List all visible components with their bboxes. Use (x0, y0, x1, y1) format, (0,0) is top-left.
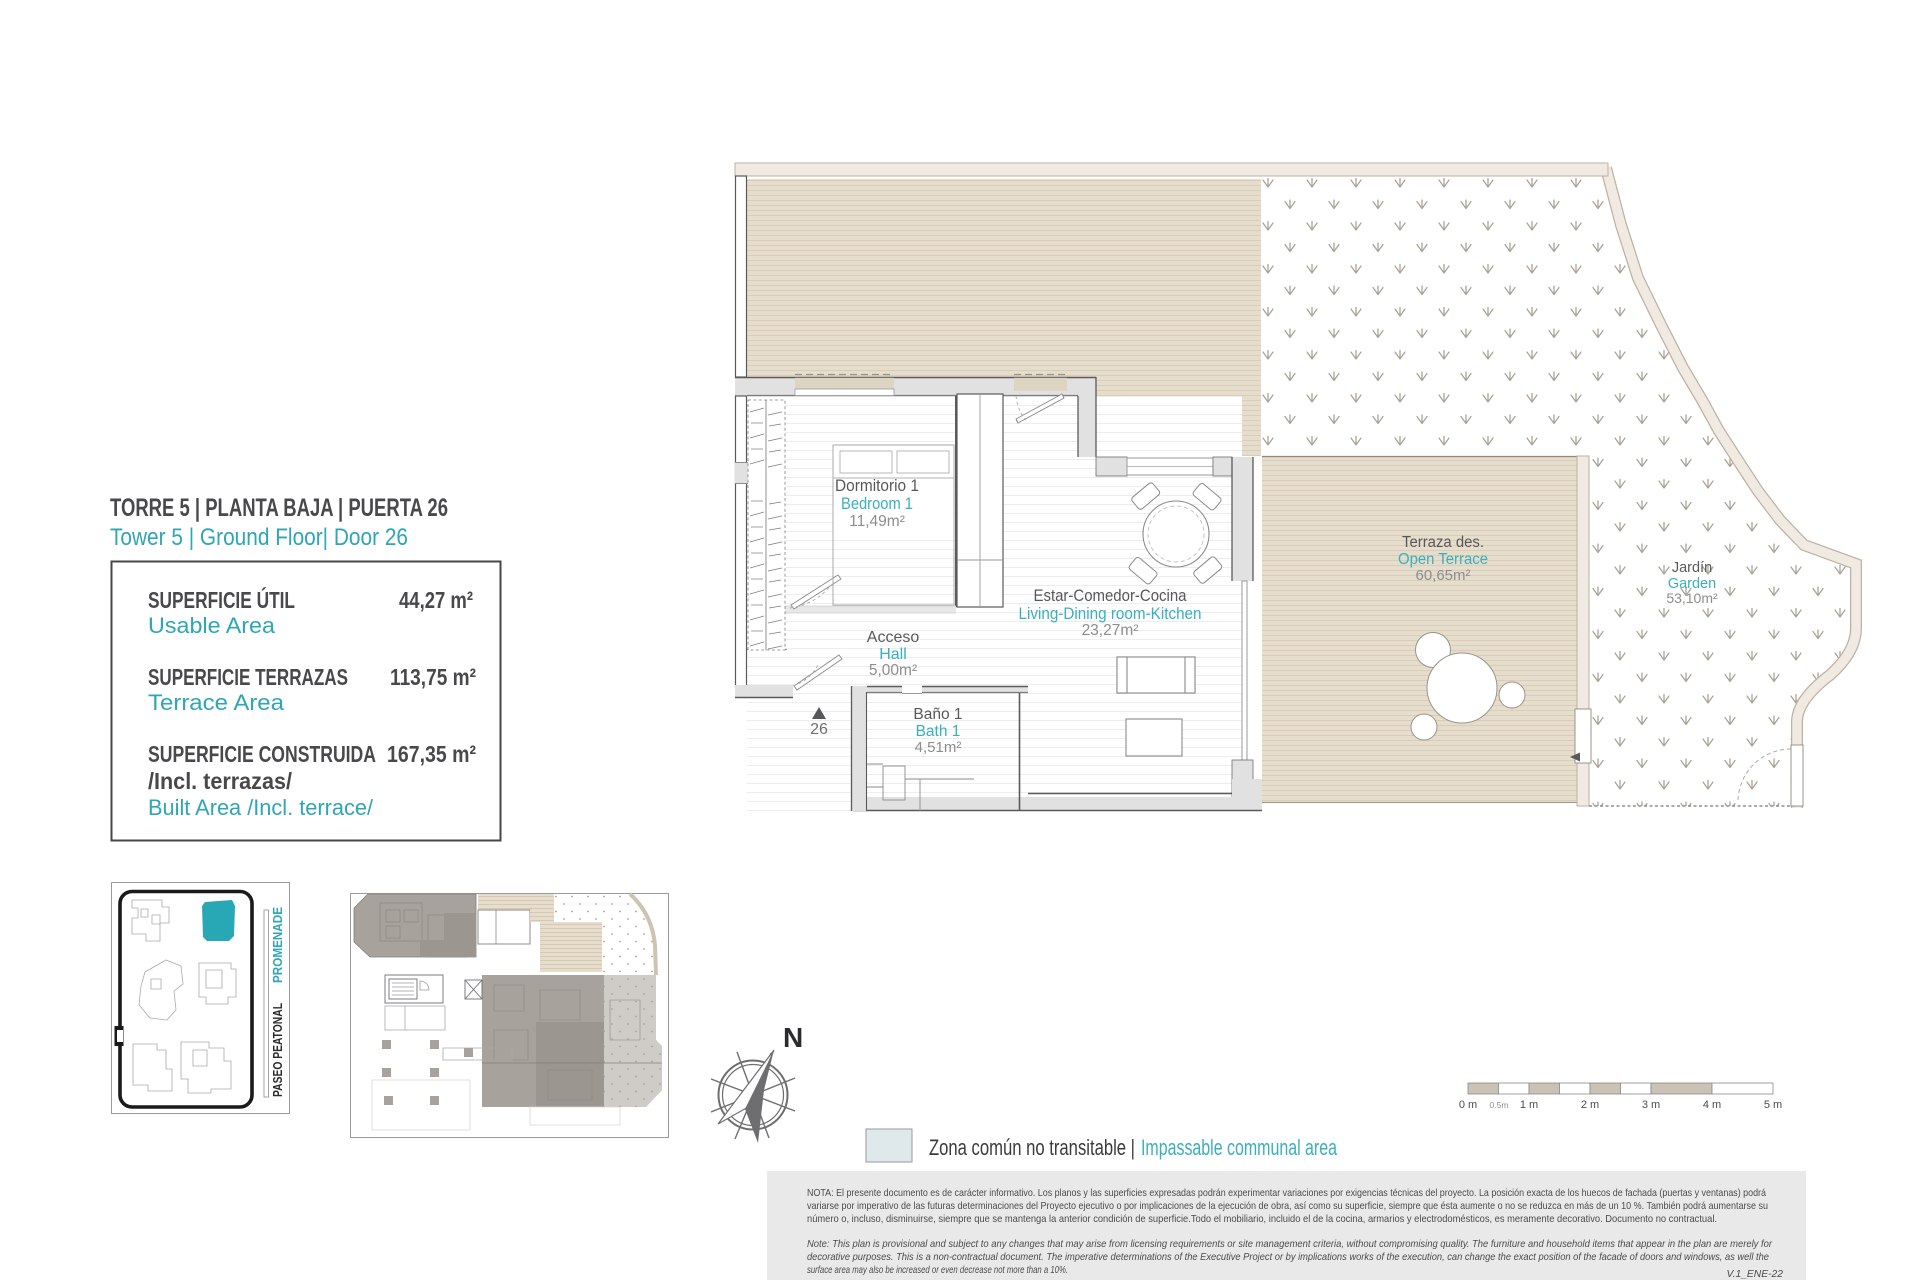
svg-text:Zona común no transitable |: Zona común no transitable | (929, 1135, 1135, 1160)
svg-text:Impassable communal area: Impassable communal area (1141, 1135, 1338, 1160)
svg-text:113,75 m²: 113,75 m² (390, 664, 476, 690)
svg-text:Acceso: Acceso (867, 629, 920, 646)
svg-text:Dormitorio 1: Dormitorio 1 (835, 477, 919, 495)
svg-text:Terraza des.: Terraza des. (1402, 534, 1484, 551)
svg-text:11,49m²: 11,49m² (849, 513, 905, 530)
svg-text:44,27 m²: 44,27 m² (399, 587, 473, 613)
svg-text:Bedroom 1: Bedroom 1 (841, 495, 913, 513)
svg-text:26: 26 (810, 721, 828, 738)
svg-text:PASEO PEATONAL: PASEO PEATONAL (270, 1003, 285, 1097)
svg-text:Hall: Hall (879, 646, 907, 663)
svg-text:167,35 m²: 167,35 m² (387, 741, 476, 767)
svg-text:variarse por imperativo de las: variarse por imperativo de las futuras d… (807, 1201, 1768, 1212)
svg-text:NOTA: El presente documento e: NOTA: El presente documento es de caráct… (807, 1188, 1766, 1199)
svg-text:SUPERFICIE TERRAZAS: SUPERFICIE TERRAZAS (148, 664, 348, 690)
svg-text:0 m: 0 m (1459, 1099, 1477, 1111)
svg-text:4 m: 4 m (1703, 1099, 1721, 1111)
svg-text:2 m: 2 m (1581, 1099, 1599, 1111)
svg-text:/Incl. terrazas/: /Incl. terrazas/ (148, 768, 293, 794)
svg-text:Bath 1: Bath 1 (916, 723, 961, 740)
svg-text:Jardín: Jardín (1672, 560, 1712, 576)
svg-text:surface area may also be incre: surface area may also be increased or ev… (807, 1265, 1068, 1276)
svg-text:Usable Area: Usable Area (148, 613, 276, 638)
svg-text:3 m: 3 m (1642, 1099, 1660, 1111)
svg-text:PROMENADE: PROMENADE (270, 907, 285, 983)
svg-text:decorative purposes. This is a: decorative purposes. This is a non-contr… (807, 1252, 1769, 1263)
svg-text:23,27m²: 23,27m² (1082, 622, 1139, 639)
svg-text:Terrace Area: Terrace Area (148, 690, 285, 715)
svg-text:1 m: 1 m (1520, 1099, 1538, 1111)
svg-text:SUPERFICIE ÚTIL: SUPERFICIE ÚTIL (148, 586, 295, 613)
svg-text:4,51m²: 4,51m² (915, 739, 962, 756)
svg-text:N: N (783, 1022, 803, 1053)
svg-text:V.1_ENE-22: V.1_ENE-22 (1727, 1269, 1784, 1280)
svg-text:Estar-Comedor-Cocina: Estar-Comedor-Cocina (1034, 587, 1188, 605)
svg-text:5 m: 5 m (1764, 1099, 1782, 1111)
svg-text:TORRE 5 | PLANTA BAJA | PUERTA: TORRE 5 | PLANTA BAJA | PUERTA 26 (110, 494, 448, 522)
svg-text:número o, incluso, disminuirse: número o, incluso, disminuirse, siempre … (807, 1214, 1717, 1225)
svg-text:60,65m²: 60,65m² (1415, 567, 1470, 584)
svg-text:Living-Dining room-Kitchen: Living-Dining room-Kitchen (1019, 605, 1202, 623)
svg-text:5,00m²: 5,00m² (869, 662, 917, 679)
svg-text:SUPERFICIE CONSTRUIDA: SUPERFICIE CONSTRUIDA (148, 741, 376, 767)
svg-text:Note: This plan is provisional: Note: This plan is provisional and subje… (807, 1239, 1773, 1250)
svg-text:0.5m: 0.5m (1490, 1100, 1509, 1110)
svg-text:Baño 1: Baño 1 (913, 706, 962, 723)
svg-text:Tower 5 | Ground Floor| Door 2: Tower 5 | Ground Floor| Door 26 (110, 524, 408, 551)
svg-text:Built Area /Incl. terrace/: Built Area /Incl. terrace/ (148, 795, 374, 820)
svg-text:Open Terrace: Open Terrace (1398, 551, 1488, 568)
svg-text:53,10m²: 53,10m² (1666, 590, 1718, 606)
